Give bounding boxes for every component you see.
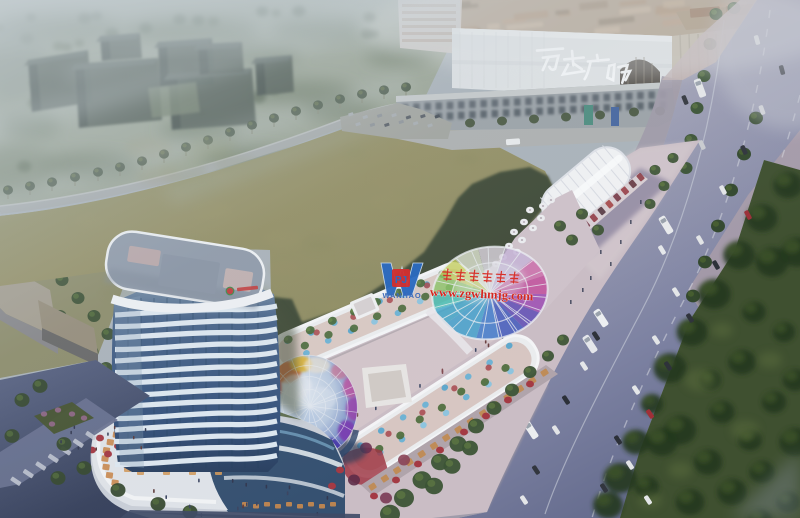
svg-text:WANHAO: WANHAO — [383, 291, 422, 300]
svg-text:PJ: PJ — [395, 275, 407, 286]
